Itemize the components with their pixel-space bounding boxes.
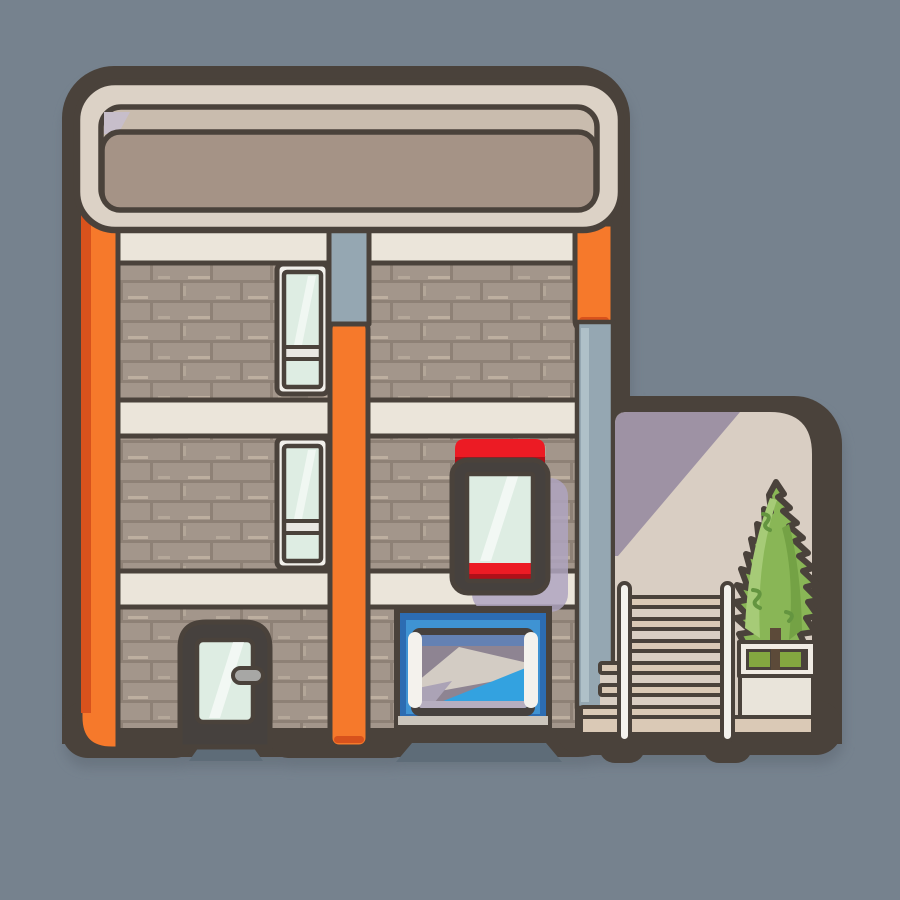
railing-post-right (722, 583, 733, 741)
railing-post-left (619, 583, 630, 741)
pillar-middle-grey-cap (329, 222, 369, 324)
window-upper (277, 264, 328, 394)
side-door[interactable] (180, 622, 270, 747)
railing-bar-2 (627, 619, 723, 629)
window-lower (277, 438, 328, 568)
stair-base-platform (581, 717, 813, 734)
building-illustration (0, 0, 900, 900)
downspout-pipe (577, 322, 613, 708)
planter-grass-right (780, 652, 801, 667)
pillar-middle (329, 222, 369, 747)
pillar-right (575, 224, 613, 330)
entrance-handle-right[interactable] (524, 632, 538, 708)
railing-bar-3 (627, 641, 723, 651)
side-door-handle[interactable] (233, 668, 263, 683)
red-display-window (452, 439, 548, 593)
entrance-door[interactable] (394, 606, 552, 728)
entrance-handle-left[interactable] (408, 632, 422, 708)
entrance-step-mat (396, 743, 562, 762)
planter-grass-left (749, 652, 770, 667)
planter-pedestal (740, 676, 813, 718)
signboard-face (102, 132, 596, 210)
roof-signboard (77, 82, 621, 230)
planter (739, 642, 815, 718)
entrance-threshold (398, 716, 548, 725)
entrance-interior (418, 635, 528, 708)
pillar-left (80, 206, 118, 749)
railing-bar-1 (627, 597, 723, 607)
